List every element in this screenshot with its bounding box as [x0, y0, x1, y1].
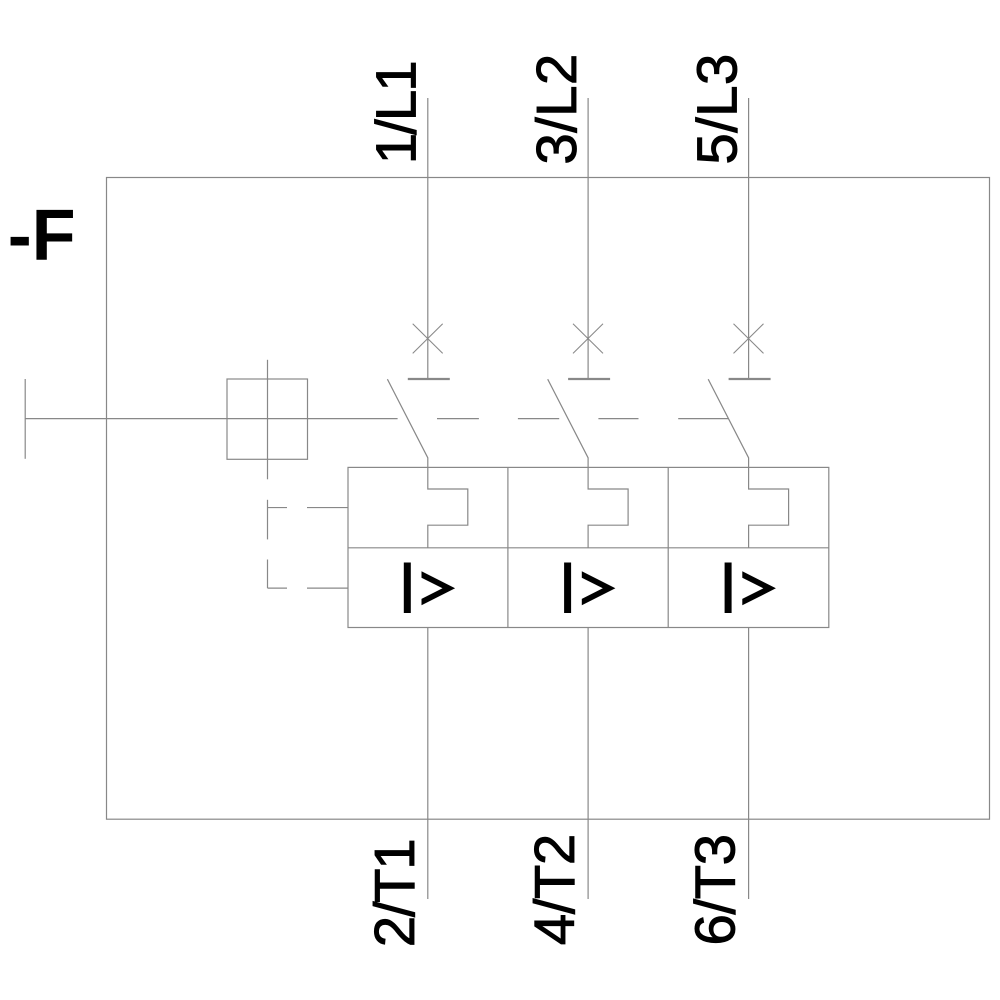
svg-text:1/L1: 1/L1	[365, 62, 428, 164]
svg-text:3/L2: 3/L2	[525, 53, 588, 164]
svg-text:-F: -F	[8, 196, 76, 276]
svg-text:6/T3: 6/T3	[684, 834, 747, 945]
svg-text:5/L3: 5/L3	[685, 53, 748, 164]
svg-text:2/T1: 2/T1	[363, 840, 426, 947]
svg-text:4/T2: 4/T2	[523, 834, 586, 945]
